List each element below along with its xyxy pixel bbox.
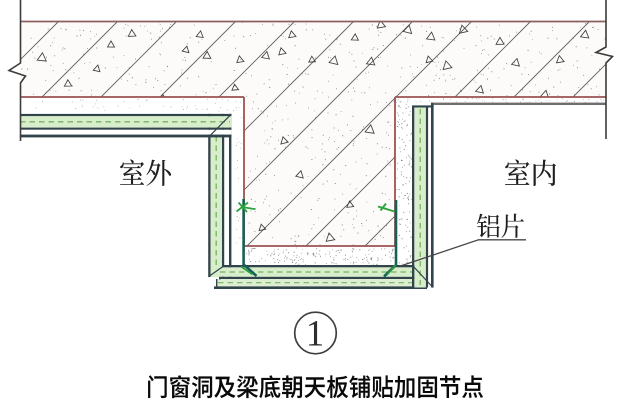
svg-text:1: 1 bbox=[306, 314, 325, 355]
